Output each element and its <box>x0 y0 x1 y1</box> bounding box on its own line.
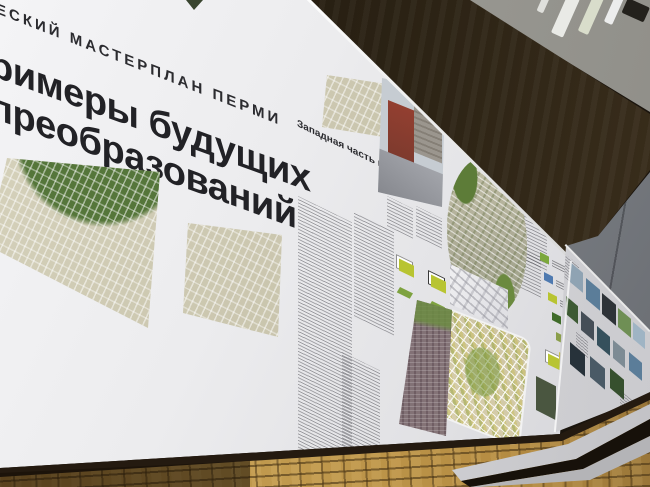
thumbnail-image <box>570 262 583 293</box>
thumbnail-image <box>629 352 642 381</box>
light-fixture <box>536 0 549 13</box>
light-fixture <box>551 0 580 38</box>
body-text-column <box>354 212 394 336</box>
thumbnail-image <box>602 293 616 326</box>
thumbnail-image <box>613 340 625 368</box>
thumbnail-image <box>586 278 600 311</box>
light-fixture <box>578 0 604 35</box>
thumbnail-image <box>590 356 605 390</box>
thumbnail-image <box>597 326 610 356</box>
ceiling-dark-patch <box>621 0 649 22</box>
exhibition-photo: ЕСКИЙ МАСТЕРПЛАН ПЕРМИ римеры будущих пр… <box>0 0 650 487</box>
